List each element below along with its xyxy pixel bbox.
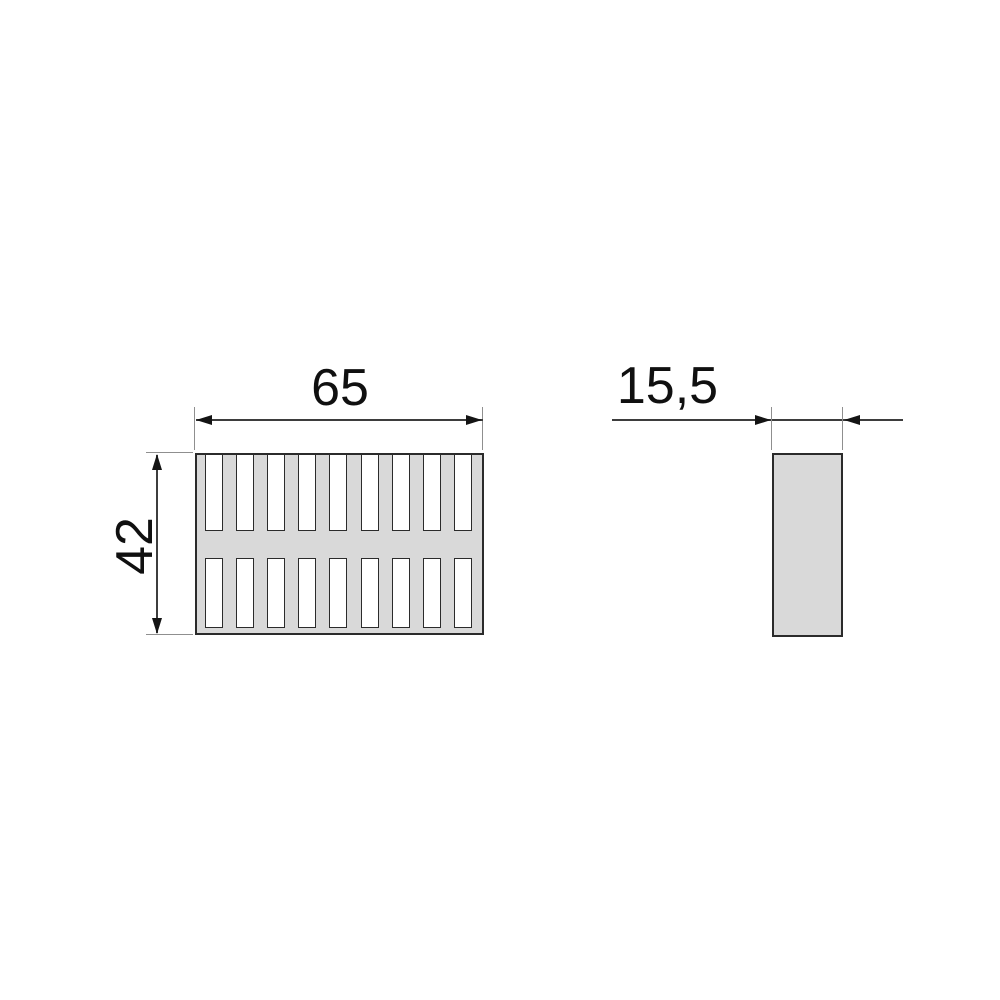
- height-arrow-down-icon: [152, 618, 162, 634]
- slot: [361, 455, 379, 531]
- slot: [423, 455, 441, 531]
- height-dimension-label: 42: [109, 496, 161, 596]
- slot: [454, 558, 472, 628]
- slot: [329, 455, 347, 531]
- width-arrow-left-icon: [196, 415, 212, 425]
- depth-extension-line-left: [771, 407, 772, 450]
- width-extension-line-left: [194, 407, 195, 450]
- slot: [392, 558, 410, 628]
- side-view: [772, 453, 843, 637]
- width-arrow-right-icon: [466, 415, 482, 425]
- slot: [392, 455, 410, 531]
- slot: [454, 455, 472, 531]
- height-arrow-up-icon: [152, 454, 162, 470]
- slot: [298, 558, 316, 628]
- slot: [361, 558, 379, 628]
- slot: [267, 455, 285, 531]
- slot: [298, 455, 316, 531]
- slot: [329, 558, 347, 628]
- front-view: [195, 453, 484, 635]
- slot: [267, 558, 285, 628]
- depth-extension-line-right: [842, 407, 843, 450]
- slot: [423, 558, 441, 628]
- height-extension-line-bottom: [146, 634, 193, 635]
- slot: [205, 455, 223, 531]
- depth-arrow-right-icon: [755, 415, 771, 425]
- slot: [205, 558, 223, 628]
- slot: [236, 455, 254, 531]
- width-dimension-label: 65: [292, 362, 388, 414]
- slot: [236, 558, 254, 628]
- front-view-bottom-slot-row: [197, 558, 482, 628]
- depth-arrow-left-icon: [844, 415, 860, 425]
- height-extension-line-top: [146, 452, 193, 453]
- depth-dimension-label: 15,5: [600, 360, 735, 412]
- width-extension-line-right: [482, 407, 483, 450]
- width-dimension-line: [196, 419, 483, 421]
- front-view-top-slot-row: [197, 455, 482, 531]
